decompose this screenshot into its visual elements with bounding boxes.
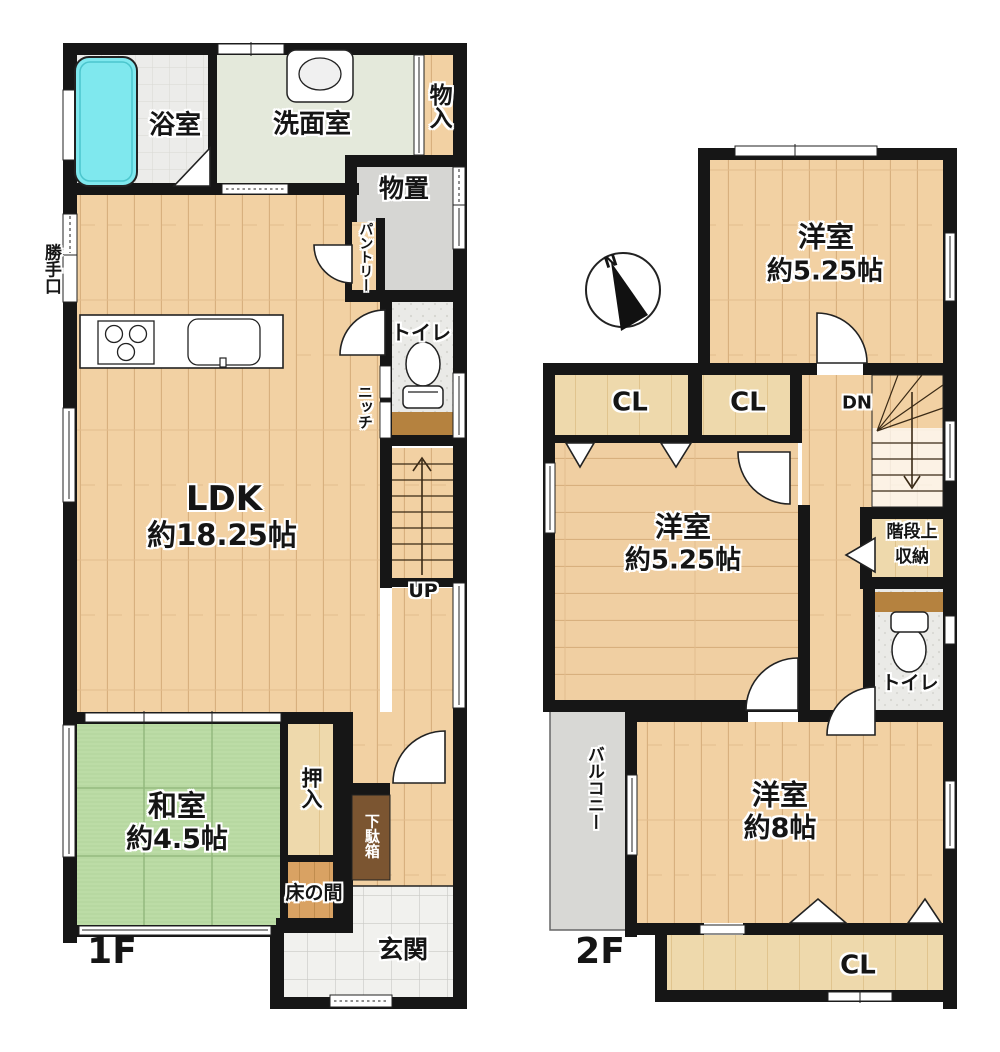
- niche-recess: [380, 366, 391, 398]
- label-storage-room: 物置: [379, 176, 429, 202]
- label-stair-storage-1: 階段上: [887, 524, 938, 542]
- label-bedroom1-size: 約5.25帖: [767, 258, 883, 285]
- label-stair-storage-2: 収納: [895, 549, 929, 567]
- label-toilet-1f: トイレ: [391, 323, 451, 344]
- label-bedroom2-size: 約5.25帖: [625, 547, 741, 574]
- label-closet3: CL: [840, 952, 876, 979]
- label-bedroom3-size: 約8帖: [744, 815, 817, 843]
- label-ldk-name: LDK: [186, 482, 262, 518]
- toilet1-tank: [403, 386, 443, 408]
- label-tatami-size: 約4.5帖: [126, 826, 228, 854]
- label-stairs-up: UP: [408, 582, 437, 602]
- label-closet-oshiire: 押入: [300, 767, 322, 809]
- label-tatami-name: 和室: [148, 791, 206, 821]
- label-closet1: CL: [612, 389, 648, 416]
- floorplan: 浴室 洗面室 物入 物置 パントリー トイレ ニッチ LDK 約18.25帖 U…: [0, 0, 1000, 1052]
- label-storage-upper: 物入: [426, 83, 450, 129]
- floor2-plan: [543, 144, 957, 1009]
- label-niche: ニッチ: [356, 385, 372, 430]
- stove: [98, 321, 154, 364]
- label-pantry: パントリー: [358, 222, 373, 292]
- label-entrance: 玄関: [378, 937, 428, 963]
- label-balcony: バルコニー: [584, 746, 602, 831]
- toilet1-bowl: [406, 342, 440, 386]
- toilet2-tank: [891, 612, 928, 632]
- label-bedroom2-name: 洋室: [655, 512, 711, 541]
- label-ldk-size: 約18.25帖: [147, 520, 297, 550]
- label-floor2: 2F: [575, 933, 625, 971]
- label-bath: 浴室: [149, 112, 201, 139]
- label-bedroom1-name: 洋室: [798, 222, 854, 251]
- label-washroom: 洗面室: [273, 111, 351, 138]
- label-alcove: 床の間: [285, 884, 342, 904]
- label-toilet-2f: トイレ: [881, 674, 938, 694]
- label-closet2: CL: [730, 389, 766, 416]
- toilet2-bowl: [892, 628, 926, 672]
- bathtub: [75, 57, 137, 186]
- label-back-door: 勝手口: [41, 244, 59, 295]
- label-floor1: 1F: [87, 933, 137, 971]
- label-stairs-down: DN: [842, 395, 872, 414]
- label-bedroom3-name: 洋室: [752, 780, 808, 809]
- label-shoe-box: 下駄箱: [363, 814, 379, 859]
